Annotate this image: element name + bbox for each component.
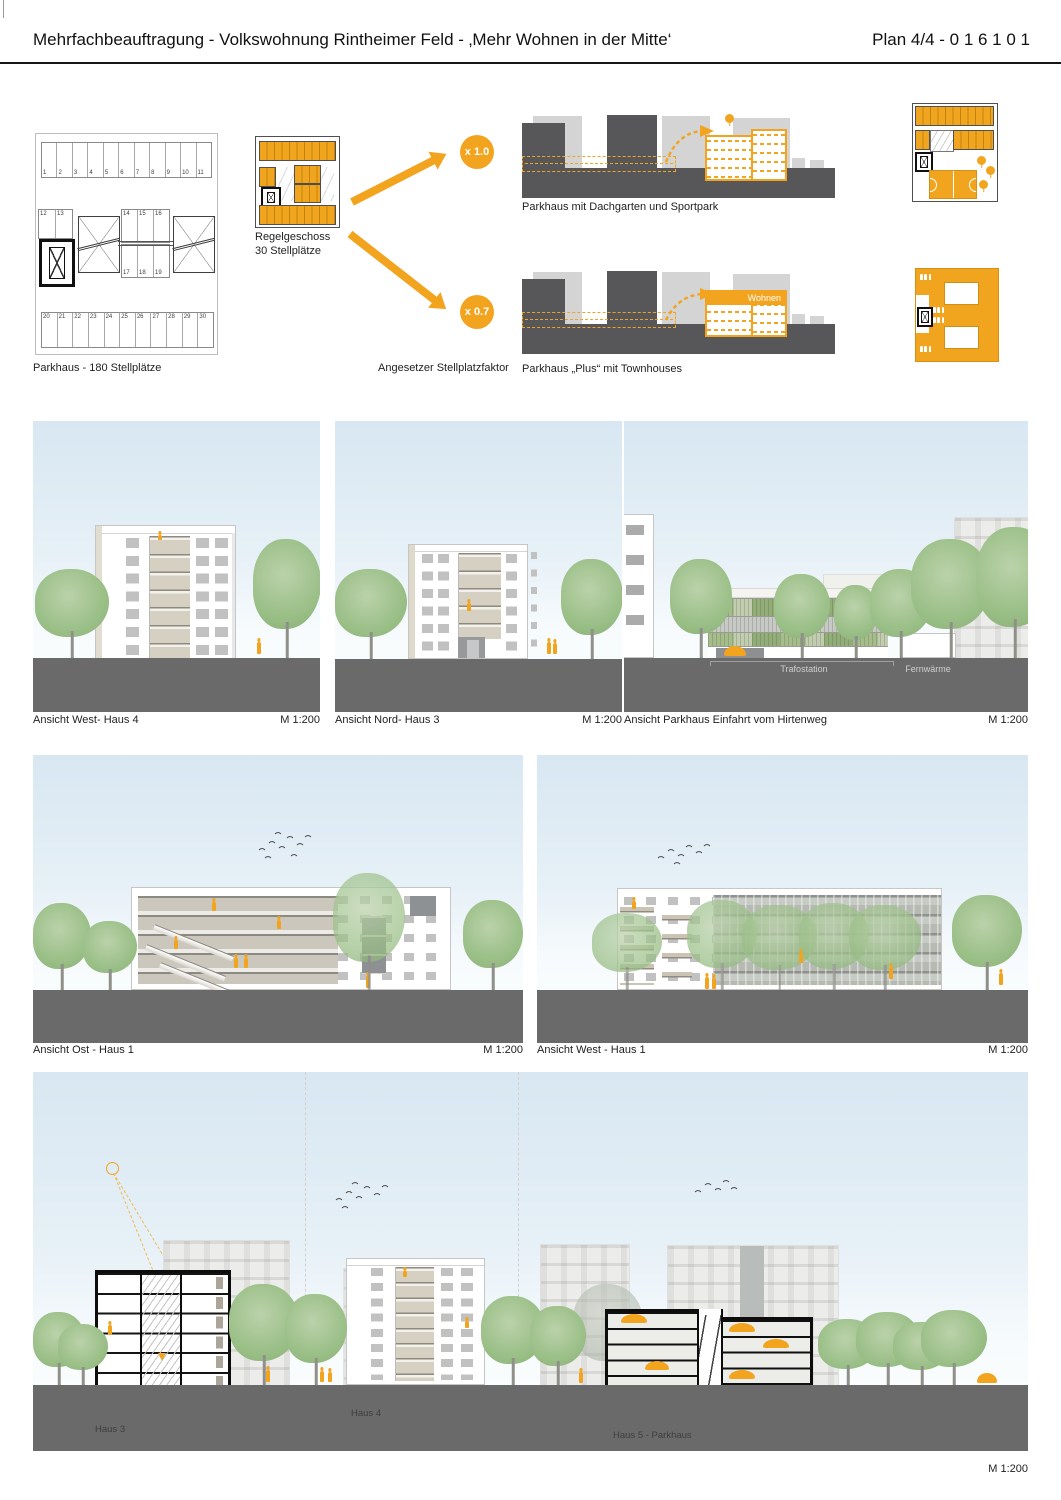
ramp-module bbox=[173, 216, 215, 273]
parking-stall: 30 bbox=[198, 313, 213, 347]
person-icon bbox=[465, 1321, 469, 1328]
parapet bbox=[409, 545, 527, 552]
scale-section: M 1:200 bbox=[988, 1463, 1028, 1475]
parking-stall: 8 bbox=[150, 143, 165, 177]
balcony-stack bbox=[395, 1267, 434, 1381]
parking-stall: 25 bbox=[120, 313, 136, 347]
ramp-module bbox=[78, 216, 120, 273]
roofplan-townhouses bbox=[915, 268, 999, 362]
stall-row-top: 1234567891011 bbox=[41, 142, 212, 178]
elevation-parkhaus-einfahrt: Trafostation Fernwärme bbox=[624, 421, 1028, 712]
car-icon bbox=[763, 1339, 789, 1348]
elevation-west-haus4 bbox=[33, 421, 320, 712]
tree-icon bbox=[774, 574, 830, 658]
stall-row-mid-bottom: 171819 bbox=[121, 244, 170, 278]
parking-stall: 28 bbox=[167, 313, 183, 347]
stall-row-mid-left: 1213 bbox=[38, 209, 73, 239]
parking-stall: 16 bbox=[154, 210, 169, 242]
tree-icon bbox=[921, 1310, 987, 1385]
haus3-label: Haus 3 bbox=[95, 1424, 125, 1435]
ground-strip bbox=[33, 990, 523, 1043]
car-icon bbox=[729, 1323, 755, 1332]
option-diagram-dachgarten bbox=[522, 112, 854, 200]
caption-parkhaus-einfahrt: Ansicht Parkhaus Einfahrt vom Hirtenweg bbox=[624, 714, 827, 726]
parking-stall: 27 bbox=[151, 313, 167, 347]
caption-nord-haus3: Ansicht Nord- Haus 3 bbox=[335, 714, 440, 726]
dashed-parking-strip bbox=[522, 156, 676, 172]
people-icon bbox=[933, 307, 944, 313]
parking-stall: 13 bbox=[56, 210, 72, 238]
person-icon bbox=[403, 1271, 407, 1277]
scale-west-haus4: M 1:200 bbox=[280, 714, 320, 726]
parking-stall: 15 bbox=[138, 210, 154, 242]
person-icon bbox=[234, 958, 238, 968]
factor-badge-top: x 1.0 bbox=[460, 135, 494, 169]
down-arrow-icon bbox=[158, 1353, 166, 1361]
parking-stall: 19 bbox=[154, 245, 169, 277]
factor-label: Angesetzer Stellplatzfaktor bbox=[378, 362, 509, 375]
stair-core bbox=[39, 239, 75, 287]
parking-strip bbox=[294, 184, 321, 203]
person-icon bbox=[712, 978, 716, 989]
person-icon bbox=[257, 642, 261, 654]
window-column bbox=[506, 554, 517, 652]
parking-strip bbox=[294, 165, 321, 184]
parking-stall: 20 bbox=[42, 313, 58, 347]
parking-strip bbox=[915, 106, 994, 126]
window-column bbox=[126, 538, 139, 655]
stair-core bbox=[915, 152, 933, 172]
window-column bbox=[215, 538, 228, 655]
caption-west-haus1: Ansicht West - Haus 1 bbox=[537, 1044, 646, 1056]
parking-stall: 2 bbox=[57, 143, 72, 177]
bird-flock-icon bbox=[253, 830, 323, 865]
ground-band bbox=[522, 324, 835, 354]
tree-icon bbox=[333, 873, 405, 990]
parking-stall: 14 bbox=[122, 210, 138, 242]
car-icon bbox=[729, 1370, 755, 1379]
parking-stall: 26 bbox=[136, 313, 152, 347]
window-column bbox=[196, 538, 209, 655]
fernwaerme-label: Fernwärme bbox=[896, 664, 960, 674]
drive-aisle-line bbox=[118, 241, 173, 246]
tree-icon bbox=[670, 559, 732, 658]
people-icon bbox=[933, 317, 944, 323]
roof-terrace bbox=[944, 282, 979, 305]
car-icon bbox=[645, 1361, 669, 1370]
stair-core bbox=[917, 307, 933, 327]
parking-strip bbox=[259, 167, 276, 187]
window-column bbox=[438, 554, 449, 652]
sheet-title: Mehrfachbeauftragung - Volkswohnung Rint… bbox=[33, 30, 671, 50]
bird-flock-icon bbox=[690, 1177, 745, 1202]
ground-strip bbox=[33, 658, 320, 712]
person-icon bbox=[547, 642, 551, 654]
option-bottom-caption: Parkhaus „Plus“ mit Townhouses bbox=[522, 363, 682, 376]
balcony-stack bbox=[149, 536, 190, 658]
tree-icon bbox=[285, 1294, 347, 1385]
person-icon bbox=[244, 958, 248, 968]
elevation-west-haus1 bbox=[537, 755, 1028, 1043]
balcony-ends-column bbox=[531, 552, 537, 648]
parking-stall: 18 bbox=[138, 245, 154, 277]
parking-stall: 22 bbox=[73, 313, 89, 347]
tree-icon bbox=[463, 900, 523, 990]
people-icon bbox=[920, 346, 931, 352]
elevation-nord-haus3 bbox=[335, 421, 622, 712]
parking-stall: 11 bbox=[197, 143, 211, 177]
window-band bbox=[626, 525, 644, 645]
parking-stall: 21 bbox=[58, 313, 74, 347]
parking-stall: 5 bbox=[104, 143, 119, 177]
plan-number: Plan 4/4 - 0 1 6 1 0 1 bbox=[872, 30, 1030, 50]
ground-strip bbox=[33, 1385, 1028, 1451]
edge-shadow bbox=[232, 533, 235, 665]
elevation-ost-haus1 bbox=[33, 755, 523, 1043]
balcony-inset bbox=[410, 896, 436, 916]
scale-parkhaus-einfahrt: M 1:200 bbox=[988, 714, 1028, 726]
window-column bbox=[441, 1268, 453, 1380]
window-column bbox=[371, 1268, 383, 1380]
person-icon bbox=[277, 920, 281, 929]
caption-west-haus4: Ansicht West- Haus 4 bbox=[33, 714, 139, 726]
tree-icon bbox=[83, 921, 137, 990]
tree-icon bbox=[530, 1306, 586, 1385]
ground-band bbox=[522, 168, 835, 198]
parking-strip bbox=[259, 205, 336, 225]
roof-terrace bbox=[944, 326, 979, 349]
balcony-stack bbox=[458, 553, 501, 639]
bird-flock-icon bbox=[330, 1180, 400, 1215]
people-icon bbox=[920, 274, 931, 280]
parking-stall: 24 bbox=[105, 313, 121, 347]
tree-icon bbox=[592, 913, 662, 990]
parkhaus-plan-caption: Parkhaus - 180 Stellplätze bbox=[33, 362, 161, 375]
adjacent-building-fragment bbox=[624, 514, 654, 658]
option-top-caption: Parkhaus mit Dachgarten und Sportpark bbox=[522, 201, 718, 214]
regelgeschoss-caption-line2: 30 Stellplätze bbox=[255, 245, 321, 258]
ramp-hatch bbox=[930, 130, 954, 152]
trafostation-label: Trafostation bbox=[754, 664, 854, 674]
factor-arrow-up-icon bbox=[350, 157, 436, 206]
scale-ost-haus1: M 1:200 bbox=[483, 1044, 523, 1056]
person-icon bbox=[266, 1370, 270, 1382]
person-icon bbox=[174, 940, 178, 949]
factor-arrow-down-icon bbox=[348, 231, 438, 304]
site-section: Haus 3 Haus 4 Haus 5 - Parkhaus bbox=[33, 1072, 1028, 1451]
scale-nord-haus3: M 1:200 bbox=[582, 714, 622, 726]
roof-tree-icon bbox=[725, 114, 734, 123]
person-icon bbox=[579, 1372, 583, 1383]
parking-stall: 12 bbox=[39, 210, 56, 238]
stall-row-mid-top: 141516 bbox=[121, 209, 170, 243]
fold-mark bbox=[3, 0, 4, 18]
person-icon bbox=[632, 901, 636, 909]
sport-court bbox=[929, 170, 977, 199]
person-icon bbox=[320, 1371, 324, 1382]
parapet bbox=[347, 1259, 484, 1266]
parkhaus-diagram bbox=[751, 129, 787, 181]
tree-icon bbox=[253, 539, 320, 658]
parking-stall: 3 bbox=[73, 143, 88, 177]
curved-arrow-icon bbox=[662, 122, 718, 164]
person-icon bbox=[467, 603, 471, 611]
header-rule bbox=[0, 62, 1061, 64]
person-icon bbox=[999, 973, 1003, 985]
window-column bbox=[422, 554, 433, 652]
roof-tree-icon bbox=[986, 166, 995, 175]
tree-icon bbox=[335, 569, 407, 659]
person-icon bbox=[328, 1372, 332, 1382]
caption-ost-haus1: Ansicht Ost - Haus 1 bbox=[33, 1044, 134, 1056]
roofplan-sportpark bbox=[912, 103, 998, 202]
parking-strip bbox=[259, 141, 336, 161]
haus4-building bbox=[346, 1258, 485, 1385]
plan-sheet: Mehrfachbeauftragung - Volkswohnung Rint… bbox=[0, 0, 1061, 1500]
tree-icon bbox=[58, 1324, 108, 1385]
tree-icon bbox=[35, 569, 109, 658]
tree-icon bbox=[952, 895, 1022, 990]
haus4-label: Haus 4 bbox=[351, 1408, 381, 1419]
parking-stall: 1 bbox=[42, 143, 57, 177]
person-icon bbox=[108, 1325, 112, 1335]
pilaster bbox=[409, 545, 415, 658]
car-icon bbox=[621, 1314, 647, 1323]
boundary-dashed-line bbox=[305, 1072, 306, 1322]
factor-badge-bottom: x 0.7 bbox=[460, 295, 494, 329]
person-icon bbox=[799, 953, 803, 963]
parking-stall: 29 bbox=[183, 313, 199, 347]
boundary-dashed-line bbox=[518, 1072, 519, 1322]
parking-stall: 23 bbox=[89, 313, 105, 347]
parking-strip bbox=[915, 130, 930, 150]
roof-tree-icon bbox=[977, 156, 986, 165]
person-icon bbox=[705, 977, 709, 989]
parking-stall: 4 bbox=[88, 143, 103, 177]
regelgeschoss-caption-line1: Regelgeschoss bbox=[255, 231, 330, 244]
tree-icon bbox=[849, 905, 921, 990]
person-icon bbox=[553, 643, 557, 654]
car-icon bbox=[977, 1373, 997, 1383]
person-icon bbox=[212, 902, 216, 911]
scale-west-haus1: M 1:200 bbox=[988, 1044, 1028, 1056]
regelgeschoss-plan bbox=[255, 136, 340, 228]
tree-icon bbox=[976, 527, 1028, 658]
haus3-building bbox=[408, 544, 528, 659]
stall-row-bottom: 2021222324252627282930 bbox=[41, 312, 214, 348]
dashed-parking-strip bbox=[522, 312, 676, 328]
entrance bbox=[458, 637, 485, 658]
door bbox=[467, 640, 479, 658]
parking-stall: 9 bbox=[166, 143, 181, 177]
parking-stall: 7 bbox=[135, 143, 150, 177]
option-diagram-townhouses: Wohnen bbox=[522, 268, 854, 356]
ground-strip bbox=[335, 659, 622, 712]
ground-strip bbox=[537, 990, 1028, 1043]
tree-icon bbox=[561, 559, 622, 659]
person-icon bbox=[889, 967, 893, 979]
haus4-building bbox=[95, 525, 236, 659]
parking-strip bbox=[953, 130, 994, 150]
bird-flock-icon bbox=[652, 840, 722, 870]
haus5-label: Haus 5 - Parkhaus bbox=[613, 1430, 692, 1441]
parking-stall: 17 bbox=[122, 245, 138, 277]
parking-stall: 6 bbox=[119, 143, 134, 177]
parkhaus-floor-plan: 1234567891011 1213 141516 171819 2021222… bbox=[35, 133, 218, 355]
roof-tree-icon bbox=[979, 180, 988, 189]
loggia-strip bbox=[216, 1277, 223, 1385]
parking-stall: 10 bbox=[181, 143, 196, 177]
curved-arrow-icon bbox=[662, 286, 718, 322]
person-icon bbox=[158, 535, 162, 540]
parapet bbox=[96, 526, 235, 534]
